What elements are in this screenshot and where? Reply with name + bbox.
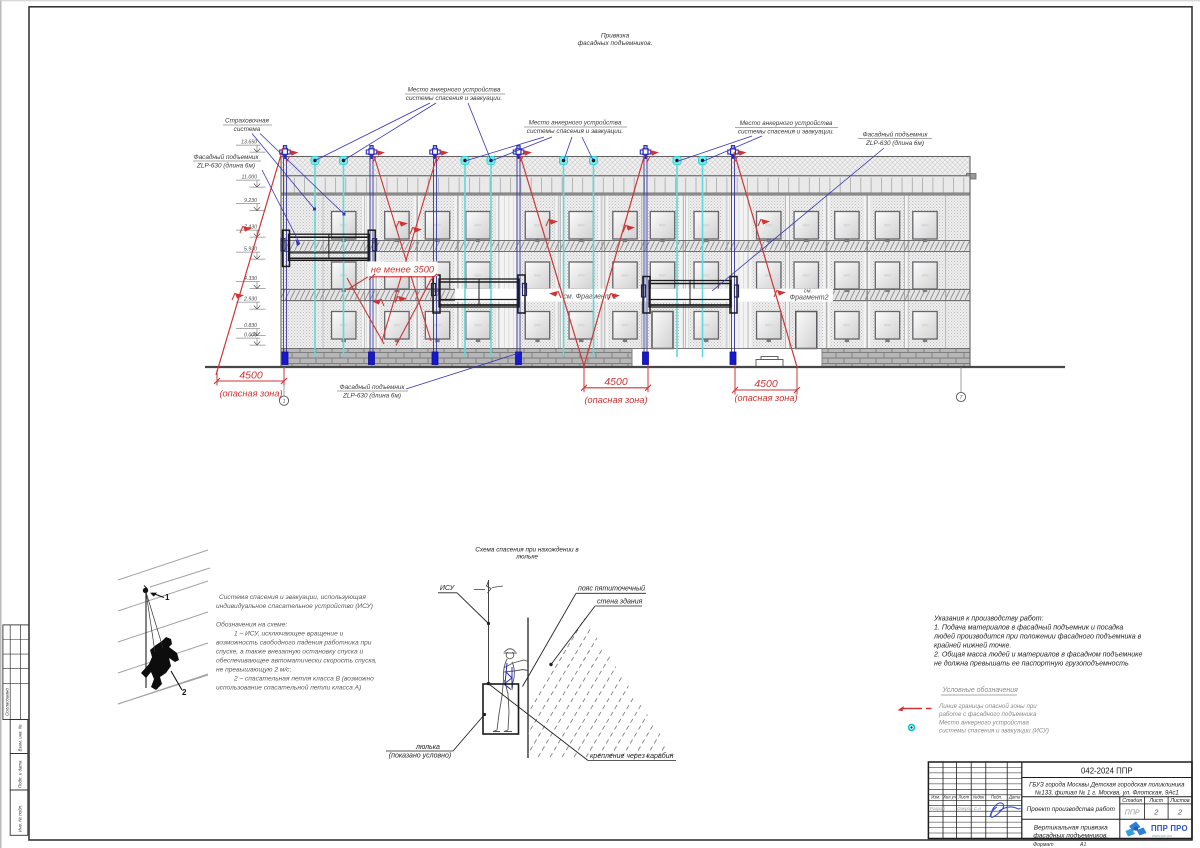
svg-text:стена здания: стена здания: [597, 598, 643, 606]
svg-text:Место анкерного устройства: Место анкерного устройства: [529, 119, 622, 127]
svg-text:Фасадный подъемник: Фасадный подъемник: [194, 153, 260, 161]
svg-text:индивидуальное спасательное ус: индивидуальное спасательное устройство (…: [216, 602, 373, 610]
svg-text:не должна превышать ее паспор: не должна превышать ее паспортную грузоп…: [934, 660, 1129, 668]
svg-text:спуске, а также внезапную оста: спуске, а также внезапную остановку спус…: [216, 649, 363, 656]
svg-text:Формат: Формат: [1033, 842, 1054, 848]
svg-text:люльке: люльке: [515, 554, 538, 561]
svg-text:системы спасения и эвакуации (: системы спасения и эвакуации (ИСУ): [939, 728, 1049, 735]
svg-text:1: 1: [283, 399, 286, 405]
svg-text:Листов: Листов: [1169, 798, 1190, 804]
svg-text:не менее 3500: не менее 3500: [371, 265, 435, 275]
svg-text:2: 2: [1153, 808, 1159, 817]
svg-text:Место анкерного устройства: Место анкерного устройства: [740, 119, 833, 127]
svg-text:Взам. инв. №: Взам. инв. №: [18, 724, 23, 751]
svg-text:система: система: [234, 126, 261, 133]
svg-text:Инв. № подл.: Инв. № подл.: [18, 805, 23, 832]
svg-text:Условные обозначения: Условные обозначения: [942, 686, 1019, 694]
svg-text:2. Общая масса людей и материа: 2. Общая масса людей и материалов в фаса…: [933, 651, 1142, 659]
svg-text:0.830: 0.830: [244, 323, 257, 329]
svg-text:Обозначения на схеме:: Обозначения на схеме:: [216, 621, 287, 629]
svg-text:(опасная зона): (опасная зона): [584, 395, 647, 405]
svg-text:Линия границы опасной зоны при: Линия границы опасной зоны при: [938, 703, 1037, 710]
svg-text:обеспечивающее автоматически: обеспечивающее автоматически скорость сп…: [216, 657, 377, 665]
svg-text:ППР: ППР: [1125, 810, 1140, 817]
svg-text:системы спасения и эвакуации.: системы спасения и эвакуации.: [527, 128, 623, 135]
svg-text:Место анкерного устройства: Место анкерного устройства: [408, 86, 501, 94]
svg-text:2 – спасательная петля класса: 2 – спасательная петля класса В (возможн…: [233, 676, 374, 683]
svg-text:люлька: люлька: [415, 744, 440, 751]
svg-text:Подп.: Подп.: [991, 795, 1002, 800]
svg-text:Подп. и дата: Подп. и дата: [18, 760, 23, 788]
svg-text:4.330: 4.330: [244, 276, 257, 282]
svg-text:ZLP-630 (длина 6м): ZLP-630 (длина 6м): [196, 162, 255, 170]
svg-text:Проект производства работ: Проект производства работ: [1027, 805, 1115, 813]
svg-text:4500: 4500: [604, 376, 628, 388]
svg-text:Система спасения и эвакуации,: Система спасения и эвакуации, использующ…: [219, 594, 366, 601]
svg-text:А1: А1: [1079, 842, 1086, 848]
svg-text:1: 1: [165, 593, 170, 602]
svg-text:Указания к производству работ:: Указания к производству работ:: [933, 615, 1044, 623]
svg-text:№док: №док: [973, 795, 985, 800]
svg-text:системы спасения и эвакуации.: системы спасения и эвакуации.: [738, 129, 834, 136]
svg-text:Кол.уч: Кол.уч: [943, 795, 956, 800]
svg-text:Фрагмент2: Фрагмент2: [790, 294, 829, 301]
svg-text:5.930: 5.930: [244, 247, 257, 253]
svg-text:работе с фасадного подъемника: работе с фасадного подъемника: [938, 711, 1037, 718]
svg-text:Место анкерного устройства: Место анкерного устройства: [939, 720, 1029, 727]
svg-text:возможность свободного падения: возможность свободного падения работника…: [216, 639, 372, 647]
svg-text:пояс пятиточечный: пояс пятиточечный: [578, 585, 645, 593]
svg-text:Привязка: Привязка: [601, 33, 630, 40]
svg-text:людей производится при положен: людей производится при положении фасадно…: [933, 633, 1142, 641]
svg-text:Изм.: Изм.: [931, 795, 940, 800]
svg-text:крайней нижней точке.: крайней нижней точке.: [934, 642, 1011, 650]
svg-text:ГБУЗ города Москвы Детская гор: ГБУЗ города Москвы Детская городская пол…: [1029, 782, 1185, 789]
svg-text:4500: 4500: [754, 378, 778, 390]
svg-text:Разраб: Разраб: [930, 806, 946, 811]
svg-text:Стадия: Стадия: [1122, 798, 1142, 804]
svg-text:(опасная зона): (опасная зона): [734, 393, 797, 403]
svg-text:(показано условно): (показано условно): [389, 753, 451, 760]
svg-text:Вертикальная привязка: Вертикальная привязка: [1034, 825, 1108, 832]
svg-text:Дата: Дата: [1008, 795, 1021, 800]
svg-text:1. Подача материалов в фасадны: 1. Подача материалов в фасадный подъемни…: [934, 624, 1123, 632]
svg-text:7: 7: [960, 395, 963, 401]
svg-text:Озеров С.А: Озеров С.А: [957, 806, 981, 811]
svg-text:Согласовано: Согласовано: [5, 688, 10, 716]
svg-text:9.230: 9.230: [244, 198, 257, 204]
svg-text:крепление через карабин: крепление через карабин: [590, 752, 674, 760]
svg-text:1 – ИСУ, исключающее вращение: 1 – ИСУ, исключающее вращение и: [234, 631, 344, 638]
svg-text:13.650: 13.650: [241, 140, 257, 146]
svg-text:№133, филиал № 1 г. Москва, ул: №133, филиал № 1 г. Москва, ул. Флотская…: [1035, 789, 1179, 796]
svg-text:использование спасательной пет: использование спасательной петли класса …: [216, 684, 361, 692]
svg-text:www.ppr-pro: www.ppr-pro: [1152, 834, 1172, 838]
svg-text:0.000: 0.000: [244, 333, 257, 339]
svg-text:системы спасения и эвакуации.: системы спасения и эвакуации.: [406, 95, 502, 102]
svg-text:ИСУ: ИСУ: [440, 585, 456, 592]
svg-text:не превышающую 2 м/с;: не превышающую 2 м/с;: [216, 667, 291, 674]
svg-text:фасадных подъемников.: фасадных подъемников.: [578, 39, 653, 47]
svg-text:Схема спасения при нахождении: Схема спасения при нахождении в: [475, 546, 579, 554]
svg-text:Лист: Лист: [1148, 798, 1163, 804]
svg-text:Фасадный подъемник: Фасадный подъемник: [340, 383, 406, 391]
svg-text:Страховочная: Страховочная: [225, 118, 269, 125]
svg-text:ZLP-630 (длина 6м): ZLP-630 (длина 6м): [865, 139, 924, 147]
svg-text:2: 2: [182, 688, 187, 697]
svg-text:2.930: 2.930: [243, 297, 257, 303]
svg-text:ZLP-630 (длина 6м): ZLP-630 (длина 6м): [342, 392, 401, 400]
svg-text:042-2024 ППР: 042-2024 ППР: [1081, 766, 1133, 775]
svg-text:Фасадный подъемник: Фасадный подъемник: [863, 131, 929, 139]
svg-text:Лист: Лист: [957, 795, 969, 800]
svg-text:(опасная зона): (опасная зона): [219, 389, 282, 399]
svg-text:фасадных подъемников.: фасадных подъемников.: [1033, 831, 1108, 839]
svg-text:11.000: 11.000: [242, 175, 258, 181]
svg-text:4500: 4500: [239, 370, 263, 382]
svg-text:ППР ПРО: ППР ПРО: [1151, 824, 1188, 833]
svg-text:2: 2: [1177, 808, 1183, 817]
